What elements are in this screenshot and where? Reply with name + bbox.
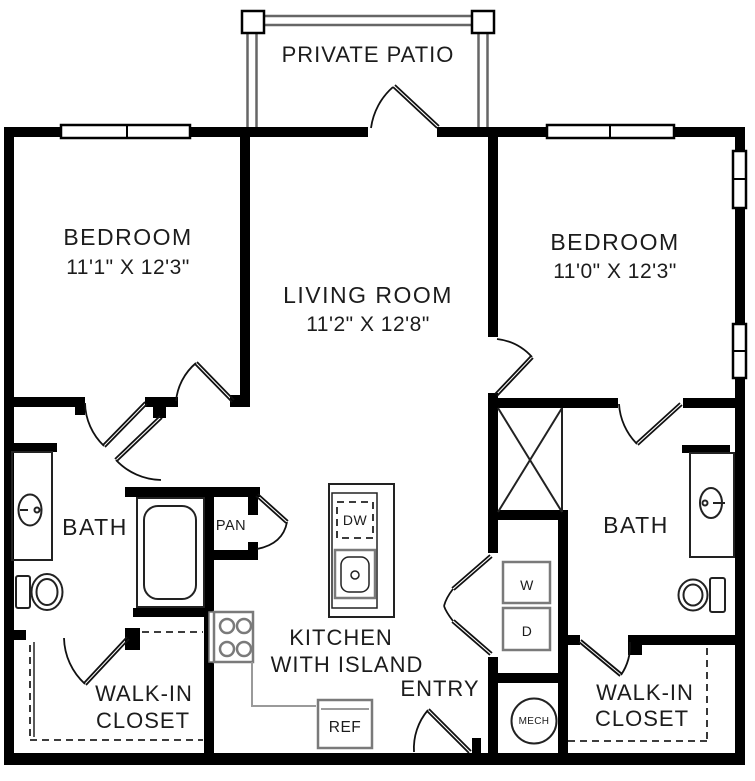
wall-segment xyxy=(488,673,566,683)
bedroom-right-door xyxy=(495,339,533,396)
washer-label: W xyxy=(520,577,534,593)
vanity-sink-right xyxy=(690,453,734,557)
floor-plan: PRIVATE PATIO BEDROOM 11'1" X 12'3" BEDR… xyxy=(0,0,755,781)
patio-post xyxy=(242,11,264,33)
wall-segment xyxy=(125,487,260,497)
patio-railing xyxy=(242,11,494,127)
pantry-door xyxy=(256,494,288,549)
entry-label: ENTRY xyxy=(400,676,479,701)
wall-segment xyxy=(133,608,214,617)
wall-segment xyxy=(682,445,730,453)
dishwasher-label: DW xyxy=(343,512,368,528)
bath-left-label: BATH xyxy=(62,514,128,540)
wall-segment xyxy=(240,137,250,405)
wall-segment xyxy=(683,398,735,408)
linen-closet xyxy=(498,408,562,512)
wall-segment xyxy=(75,397,85,415)
kitchen-label-line1: KITCHEN xyxy=(289,625,393,650)
wall-segment xyxy=(493,398,618,408)
kitchen-label-line2: WITH ISLAND xyxy=(271,652,424,677)
wall-segment xyxy=(472,738,481,753)
wall-segment xyxy=(735,207,745,325)
bedroom-right-label: BEDROOM xyxy=(550,229,679,255)
wall-segment xyxy=(488,137,498,337)
living-room-label: LIVING ROOM xyxy=(283,282,453,308)
bedroom-left-label: BEDROOM xyxy=(63,224,192,250)
kitchen-island xyxy=(329,484,394,617)
wall-segment xyxy=(488,510,566,520)
wall-segment xyxy=(248,487,258,515)
living-room-dims: 11'2" X 12'8" xyxy=(306,313,430,336)
wall-segment xyxy=(437,127,548,137)
closet-left-label-line2: CLOSET xyxy=(96,708,190,733)
closet-left-label-line1: WALK-IN xyxy=(95,681,193,706)
wall-segment xyxy=(4,753,745,765)
closet-right-label-line1: WALK-IN xyxy=(596,680,694,705)
closet-left-door xyxy=(64,637,129,685)
wall-segment xyxy=(673,127,745,137)
stove xyxy=(209,612,253,662)
patio-door xyxy=(371,85,439,128)
closet-right-door xyxy=(579,640,630,676)
patio-post xyxy=(472,11,494,33)
bath-right-door xyxy=(619,403,682,445)
wall-segment xyxy=(4,127,14,765)
wall-segment xyxy=(562,635,580,645)
wall-segment xyxy=(642,635,735,645)
dryer-label: D xyxy=(522,623,533,639)
patio-label: PRIVATE PATIO xyxy=(282,42,455,67)
refrigerator-label: REF xyxy=(329,719,362,736)
wall-segment xyxy=(488,657,498,763)
bedroom-right-dims: 11'0" X 12'3" xyxy=(553,260,677,283)
floor-plan-canvas: PRIVATE PATIO BEDROOM 11'1" X 12'3" BEDR… xyxy=(0,0,755,781)
bathtub xyxy=(137,498,204,607)
bath-right-label: BATH xyxy=(603,512,669,538)
toilet-right xyxy=(679,578,726,612)
wall-segment xyxy=(735,127,745,152)
closet-right-label-line2: CLOSET xyxy=(595,706,689,731)
wall-segment xyxy=(488,393,498,553)
bedroom-left-door xyxy=(176,362,234,402)
toilet-left xyxy=(16,574,63,610)
vanity-sink-left xyxy=(12,452,52,560)
bedroom-left-dims: 11'1" X 12'3" xyxy=(66,256,190,279)
wall-segment xyxy=(14,397,85,407)
wall-segment xyxy=(190,127,368,137)
entry-door xyxy=(414,709,471,753)
mechanical-label: MECH xyxy=(519,716,550,727)
wall-segment xyxy=(735,377,745,765)
wall-segment xyxy=(248,542,258,560)
window xyxy=(61,125,190,138)
wall-segment xyxy=(14,443,57,452)
wall-segment xyxy=(4,630,26,640)
wall-segment xyxy=(125,628,140,650)
laundry-doors xyxy=(444,555,492,655)
pantry-label: PAN xyxy=(216,518,246,534)
